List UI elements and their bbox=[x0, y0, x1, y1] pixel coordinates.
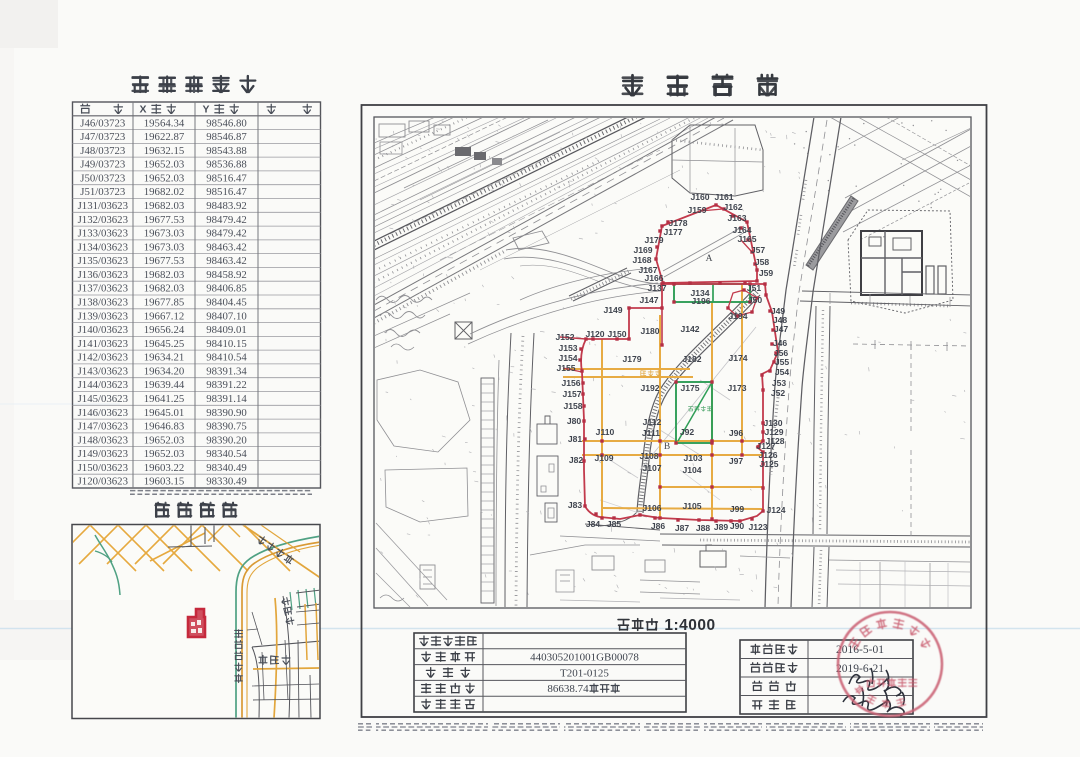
svg-text:J179: J179 bbox=[644, 235, 663, 245]
svg-text:J177: J177 bbox=[663, 227, 682, 237]
svg-text:19622.87: 19622.87 bbox=[144, 131, 185, 143]
svg-text:98543.88: 98543.88 bbox=[206, 145, 247, 157]
svg-text:19682.03: 19682.03 bbox=[144, 200, 185, 212]
svg-text:J137: J137 bbox=[647, 283, 666, 293]
svg-text:J137/03623: J137/03623 bbox=[78, 283, 128, 295]
svg-text:J52: J52 bbox=[771, 388, 786, 398]
svg-text:J163: J163 bbox=[727, 213, 746, 223]
svg-text:19632.15: 19632.15 bbox=[144, 145, 185, 157]
svg-text:J168: J168 bbox=[632, 255, 651, 265]
svg-text:98463.42: 98463.42 bbox=[206, 241, 247, 253]
svg-text:19634.20: 19634.20 bbox=[144, 365, 185, 377]
svg-text:J140/03623: J140/03623 bbox=[78, 324, 128, 336]
svg-text:J180: J180 bbox=[640, 326, 659, 336]
svg-text:J81: J81 bbox=[568, 434, 583, 444]
svg-text:19639.44: 19639.44 bbox=[144, 379, 185, 391]
svg-text:98407.10: 98407.10 bbox=[206, 310, 247, 322]
svg-text:J175: J175 bbox=[680, 383, 699, 393]
svg-text:T201-0125: T201-0125 bbox=[560, 667, 609, 679]
svg-text:J112: J112 bbox=[643, 417, 662, 427]
svg-text:J110: J110 bbox=[596, 427, 615, 437]
svg-text:J165: J165 bbox=[737, 234, 756, 244]
svg-text:J161: J161 bbox=[714, 192, 733, 202]
svg-text:J105: J105 bbox=[682, 501, 701, 511]
svg-text:J153: J153 bbox=[558, 343, 577, 353]
svg-text:J143/03623: J143/03623 bbox=[78, 365, 128, 377]
svg-text:19645.01: 19645.01 bbox=[144, 407, 185, 419]
svg-text:J134/03623: J134/03623 bbox=[78, 241, 128, 253]
svg-text:J86: J86 bbox=[651, 521, 666, 531]
svg-text:98483.92: 98483.92 bbox=[206, 200, 247, 212]
svg-text:J80: J80 bbox=[567, 416, 582, 426]
svg-text:19603.22: 19603.22 bbox=[144, 462, 185, 474]
svg-text:J57: J57 bbox=[751, 245, 766, 255]
svg-text:J145/03623: J145/03623 bbox=[78, 393, 128, 405]
svg-text:J109: J109 bbox=[594, 453, 613, 463]
svg-text:J162: J162 bbox=[723, 202, 742, 212]
svg-text:19682.02: 19682.02 bbox=[144, 186, 185, 198]
svg-text:J142: J142 bbox=[680, 324, 699, 334]
svg-text:98390.20: 98390.20 bbox=[206, 434, 247, 446]
svg-text:98409.01: 98409.01 bbox=[206, 324, 247, 336]
svg-text:J146/03623: J146/03623 bbox=[78, 407, 128, 419]
svg-text:J83: J83 bbox=[568, 500, 583, 510]
svg-text:J99: J99 bbox=[730, 504, 745, 514]
svg-text:J159: J159 bbox=[687, 205, 706, 215]
svg-text:98546.80: 98546.80 bbox=[206, 117, 247, 129]
svg-text:19677.85: 19677.85 bbox=[144, 297, 185, 309]
svg-text:J150/03623: J150/03623 bbox=[78, 462, 128, 474]
svg-text:19682.03: 19682.03 bbox=[144, 269, 185, 281]
svg-text:J59: J59 bbox=[759, 268, 774, 278]
svg-text:19652.03: 19652.03 bbox=[144, 448, 185, 460]
svg-text:2019-6-21: 2019-6-21 bbox=[836, 663, 884, 675]
svg-text:19656.24: 19656.24 bbox=[144, 324, 185, 336]
svg-text:J124: J124 bbox=[766, 505, 785, 515]
svg-text:J132/03623: J132/03623 bbox=[78, 214, 128, 226]
svg-text:J47: J47 bbox=[774, 324, 789, 334]
svg-text:98458.92: 98458.92 bbox=[206, 269, 247, 281]
svg-text:98391.34: 98391.34 bbox=[206, 365, 247, 377]
svg-text:J138/03623: J138/03623 bbox=[78, 297, 128, 309]
svg-text:J174: J174 bbox=[728, 353, 747, 363]
svg-text:J51/03723: J51/03723 bbox=[80, 186, 125, 198]
svg-text:J135/03623: J135/03623 bbox=[78, 255, 128, 267]
svg-text:J104: J104 bbox=[682, 465, 701, 475]
svg-text:98463.42: 98463.42 bbox=[206, 255, 247, 267]
svg-text:J87: J87 bbox=[675, 523, 690, 533]
svg-text:J125: J125 bbox=[759, 459, 778, 469]
svg-text:19645.25: 19645.25 bbox=[144, 338, 185, 350]
svg-text:J192: J192 bbox=[640, 383, 659, 393]
svg-text:J152: J152 bbox=[555, 332, 574, 342]
svg-text:19652.03: 19652.03 bbox=[144, 172, 185, 184]
svg-text:19652.03: 19652.03 bbox=[144, 159, 185, 171]
svg-text:J158: J158 bbox=[563, 401, 582, 411]
svg-text:J194: J194 bbox=[728, 311, 747, 321]
svg-text:J160: J160 bbox=[690, 192, 709, 202]
svg-text:J120: J120 bbox=[585, 329, 604, 339]
svg-text:J166: J166 bbox=[644, 273, 663, 283]
svg-text:19652.03: 19652.03 bbox=[144, 434, 185, 446]
svg-text:J49/03723: J49/03723 bbox=[80, 159, 125, 171]
svg-text:98406.85: 98406.85 bbox=[206, 283, 247, 295]
svg-text:19677.53: 19677.53 bbox=[144, 255, 185, 267]
svg-text:J50/03723: J50/03723 bbox=[80, 172, 125, 184]
svg-text:X: X bbox=[139, 104, 146, 116]
svg-text:J148/03623: J148/03623 bbox=[78, 434, 128, 446]
svg-text:J46/03723: J46/03723 bbox=[80, 117, 125, 129]
svg-text:J173: J173 bbox=[727, 383, 746, 393]
svg-text:440305201001GB00078: 440305201001GB00078 bbox=[530, 652, 639, 664]
svg-text:J103: J103 bbox=[683, 453, 702, 463]
svg-text:19634.21: 19634.21 bbox=[144, 352, 185, 364]
svg-text:J50: J50 bbox=[748, 295, 763, 305]
svg-text:J156: J156 bbox=[561, 378, 580, 388]
svg-text:J111: J111 bbox=[642, 428, 660, 438]
svg-text:19667.12: 19667.12 bbox=[144, 310, 185, 322]
svg-text:J120/03623: J120/03623 bbox=[78, 476, 128, 488]
svg-text:J169: J169 bbox=[633, 245, 652, 255]
svg-text:98404.45: 98404.45 bbox=[206, 297, 247, 309]
svg-text:19673.03: 19673.03 bbox=[144, 241, 185, 253]
svg-text:J149: J149 bbox=[603, 305, 622, 315]
svg-text:J51: J51 bbox=[747, 283, 762, 293]
svg-text:J154: J154 bbox=[558, 353, 577, 363]
svg-text:J96: J96 bbox=[729, 428, 744, 438]
svg-text:J92: J92 bbox=[680, 427, 695, 437]
svg-text:J142/03623: J142/03623 bbox=[78, 352, 128, 364]
svg-text:J82: J82 bbox=[569, 455, 584, 465]
svg-text:19641.25: 19641.25 bbox=[144, 393, 185, 405]
svg-text:98340.49: 98340.49 bbox=[206, 462, 247, 474]
svg-text:19682.03: 19682.03 bbox=[144, 283, 185, 295]
svg-text:98390.90: 98390.90 bbox=[206, 407, 247, 419]
svg-text:98536.88: 98536.88 bbox=[206, 159, 247, 171]
svg-text:98546.87: 98546.87 bbox=[206, 131, 247, 143]
svg-text:J136/03623: J136/03623 bbox=[78, 269, 128, 281]
svg-text:98391.22: 98391.22 bbox=[206, 379, 247, 391]
svg-text:J150: J150 bbox=[607, 329, 626, 339]
svg-text:J149/03623: J149/03623 bbox=[78, 448, 128, 460]
svg-text:98516.47: 98516.47 bbox=[206, 172, 247, 184]
svg-text:J53: J53 bbox=[772, 378, 787, 388]
svg-text:19564.34: 19564.34 bbox=[144, 117, 185, 129]
svg-text:：: ： bbox=[653, 618, 665, 632]
svg-text:19677.53: 19677.53 bbox=[144, 214, 185, 226]
svg-text:1:4000: 1:4000 bbox=[664, 617, 715, 634]
svg-text:J147: J147 bbox=[639, 295, 658, 305]
svg-text:J147/03623: J147/03623 bbox=[78, 421, 128, 433]
svg-text:J58: J58 bbox=[755, 257, 770, 267]
svg-text:J139/03623: J139/03623 bbox=[78, 310, 128, 322]
svg-text:J131/03623: J131/03623 bbox=[78, 200, 128, 212]
svg-text:Y: Y bbox=[202, 104, 209, 116]
svg-text:98330.49: 98330.49 bbox=[206, 476, 247, 488]
svg-text:J90: J90 bbox=[730, 521, 745, 531]
svg-text:J144/03623: J144/03623 bbox=[78, 379, 128, 391]
svg-text:J85: J85 bbox=[607, 519, 622, 529]
svg-text:J141/03623: J141/03623 bbox=[78, 338, 128, 350]
svg-text:J46: J46 bbox=[773, 338, 788, 348]
svg-text:J196: J196 bbox=[691, 296, 710, 306]
svg-text:J182: J182 bbox=[682, 354, 701, 364]
svg-text:98479.42: 98479.42 bbox=[206, 228, 247, 240]
svg-text:19673.03: 19673.03 bbox=[144, 228, 185, 240]
svg-text:J56: J56 bbox=[774, 348, 789, 358]
svg-text:J155: J155 bbox=[556, 363, 575, 373]
svg-text:J48: J48 bbox=[773, 315, 788, 325]
svg-text:J54: J54 bbox=[775, 367, 790, 377]
svg-text:J123: J123 bbox=[748, 522, 767, 532]
svg-text:19603.15: 19603.15 bbox=[144, 476, 185, 488]
svg-text:98391.14: 98391.14 bbox=[206, 393, 247, 405]
svg-text:J157: J157 bbox=[562, 389, 581, 399]
svg-text:J47/03723: J47/03723 bbox=[80, 131, 125, 143]
svg-text:98479.42: 98479.42 bbox=[206, 214, 247, 226]
svg-text:J179: J179 bbox=[622, 354, 641, 364]
svg-text:19646.83: 19646.83 bbox=[144, 421, 185, 433]
svg-text:B: B bbox=[664, 442, 670, 452]
svg-text:A: A bbox=[706, 254, 713, 264]
svg-text:J106: J106 bbox=[642, 503, 661, 513]
svg-text:J55: J55 bbox=[775, 357, 790, 367]
svg-text:J133/03623: J133/03623 bbox=[78, 228, 128, 240]
svg-text:2016-5-01: 2016-5-01 bbox=[836, 644, 884, 656]
svg-text:J107: J107 bbox=[642, 463, 661, 473]
svg-text:98410.54: 98410.54 bbox=[206, 352, 247, 364]
svg-text:J108: J108 bbox=[639, 451, 658, 461]
svg-text:98390.75: 98390.75 bbox=[206, 421, 247, 433]
svg-text:J89: J89 bbox=[714, 522, 729, 532]
svg-text:98516.47: 98516.47 bbox=[206, 186, 247, 198]
svg-text:J84: J84 bbox=[586, 519, 601, 529]
svg-text:J48/03723: J48/03723 bbox=[80, 145, 125, 157]
svg-text:98340.54: 98340.54 bbox=[206, 448, 247, 460]
svg-text:J88: J88 bbox=[696, 523, 711, 533]
svg-text:98410.15: 98410.15 bbox=[206, 338, 247, 350]
svg-text:J49: J49 bbox=[771, 306, 786, 316]
svg-text:86638.74: 86638.74 bbox=[547, 683, 589, 695]
svg-text:J97: J97 bbox=[729, 456, 744, 466]
